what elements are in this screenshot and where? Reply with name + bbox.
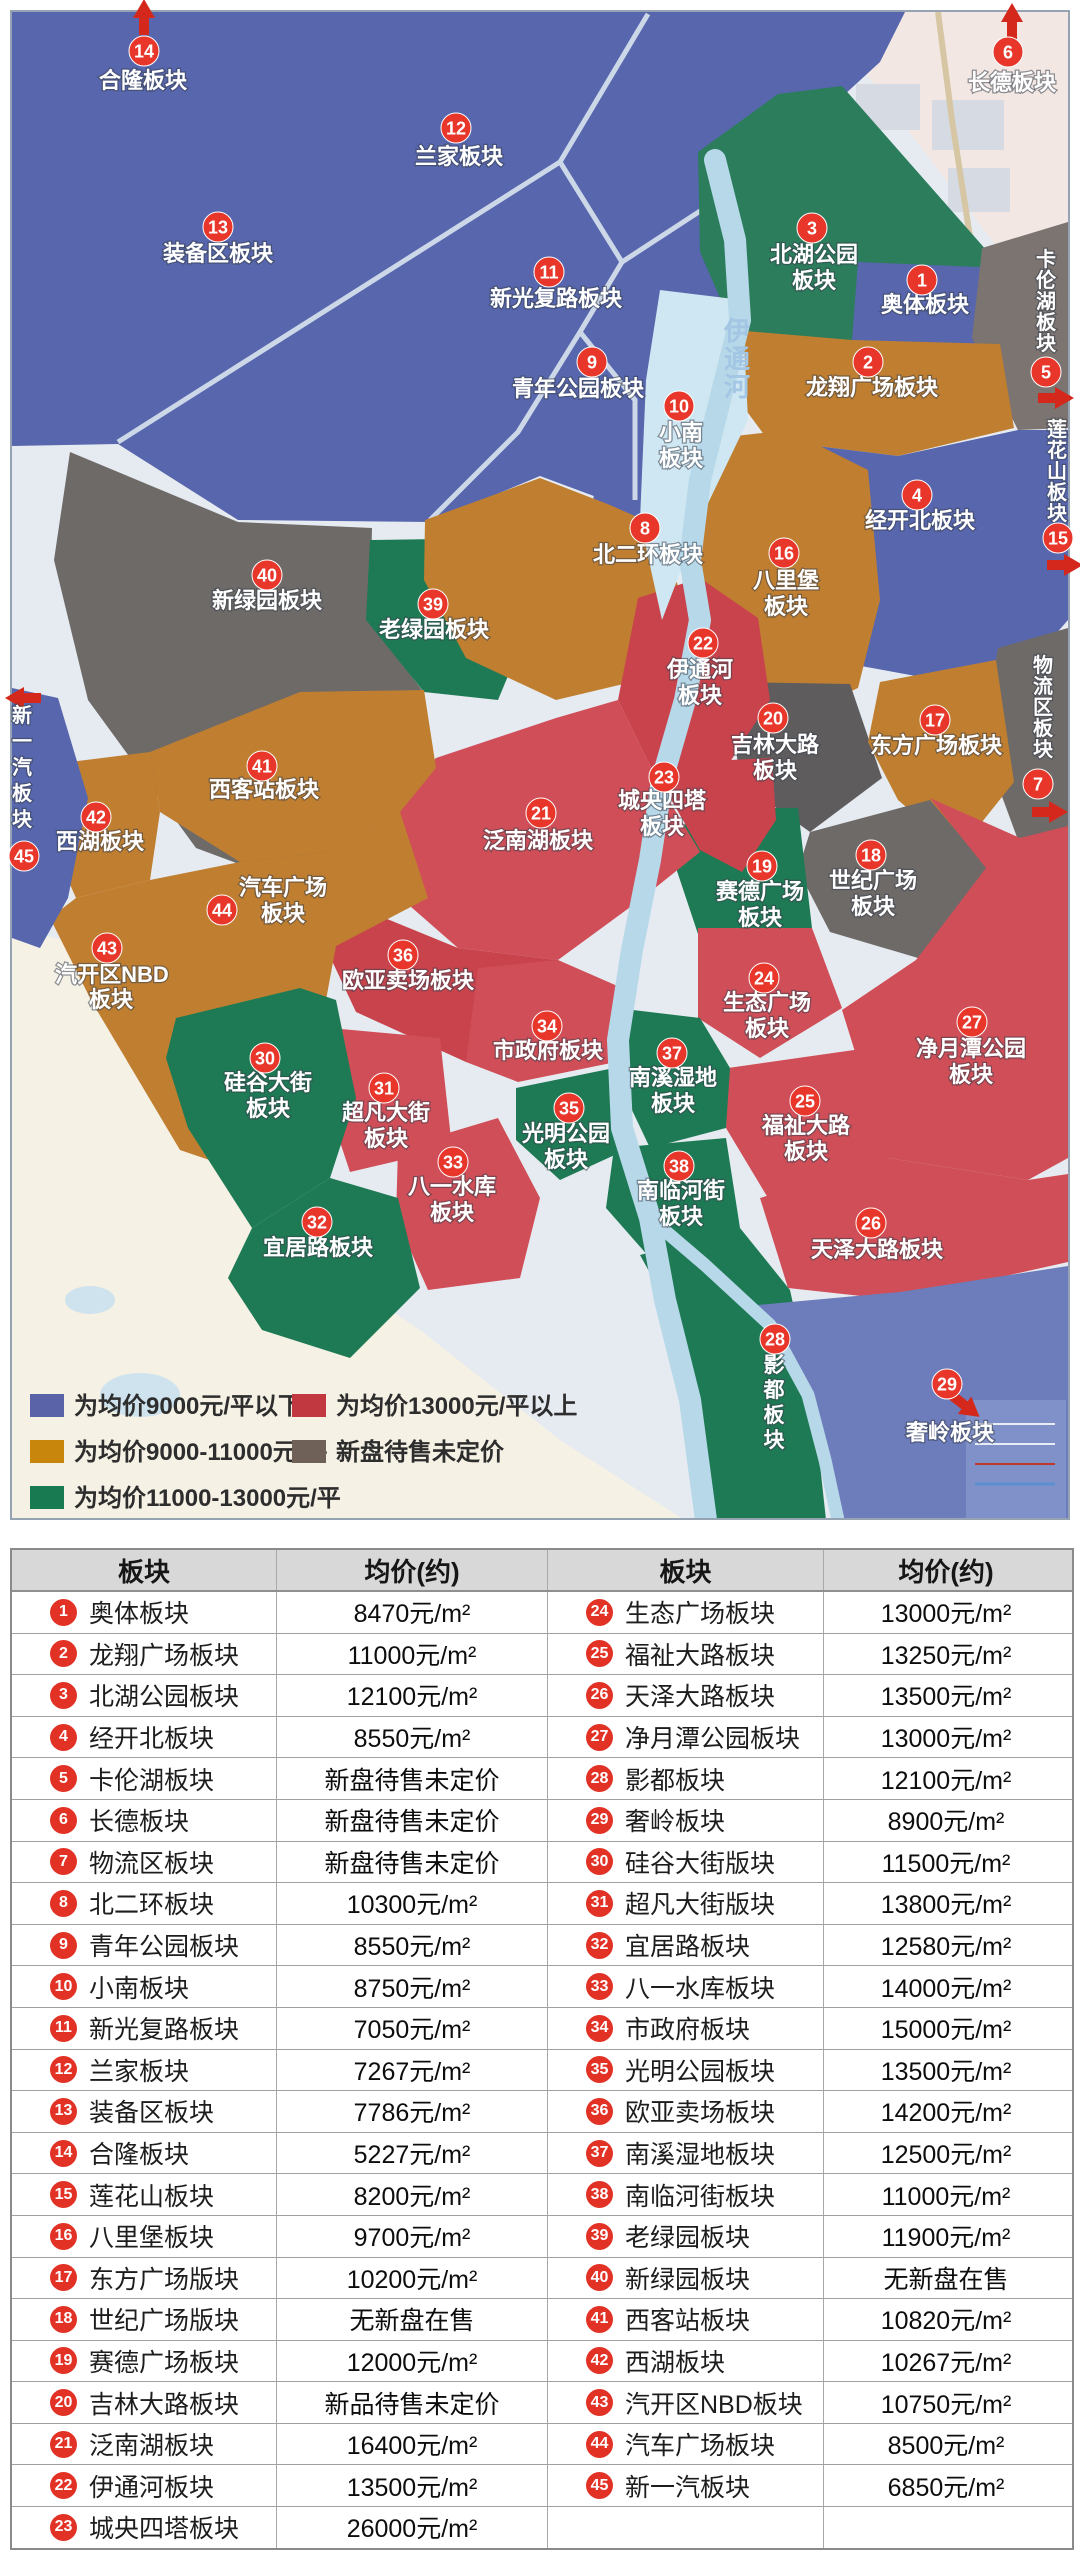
svg-text:伊通河: 伊通河	[666, 657, 733, 682]
block-price-cell: 11900元/m²	[823, 2216, 1068, 2257]
table-row: 11新光复路板块7050元/m²34市政府板块15000元/m²	[12, 2008, 1072, 2050]
block-number-badge: 38	[586, 2181, 613, 2208]
block-price-cell: 13000元/m²	[823, 1717, 1068, 1758]
svg-text:板块: 板块	[738, 905, 783, 930]
svg-text:天泽大路板块: 天泽大路板块	[811, 1237, 944, 1262]
block-number-badge: 24	[586, 1599, 613, 1626]
table-row: 6长德板块新盘待售未定价29奢岭板块8900元/m²	[12, 1800, 1072, 1842]
block-number-badge: 39	[586, 2223, 613, 2250]
block-price-cell: 26000元/m²	[276, 2507, 547, 2548]
block-name-cell: 18世纪广场版块	[12, 2299, 276, 2340]
block-name-cell: 38南临河街板块	[547, 2174, 823, 2215]
svg-text:6: 6	[1003, 43, 1013, 63]
svg-text:板: 板	[1036, 310, 1057, 334]
block-number-badge: 23	[50, 2514, 77, 2541]
svg-text:块: 块	[764, 1429, 786, 1452]
svg-text:板块: 板块	[851, 894, 896, 919]
block-name: 南临河街板块	[625, 2177, 775, 2213]
block-number-badge: 35	[586, 2056, 613, 2083]
header-block-right: 板块	[547, 1550, 823, 1590]
svg-text:小南: 小南	[659, 420, 703, 445]
block-number-badge: 32	[586, 1932, 613, 1959]
block-number-badge: 18	[50, 2306, 77, 2333]
svg-text:青年公园板块: 青年公园板块	[512, 376, 645, 401]
svg-text:为均价11000-13000元/平: 为均价11000-13000元/平	[74, 1484, 341, 1512]
block-name: 经开北板块	[89, 1719, 214, 1755]
block-number-badge: 26	[586, 1682, 613, 1709]
table-row: 12兰家板块7267元/m²35光明公园板块13500元/m²	[12, 2050, 1072, 2092]
svg-text:吉林大路: 吉林大路	[731, 732, 820, 757]
block-price-cell: 12100元/m²	[823, 1758, 1068, 1799]
block-name-cell: 7物流区板块	[12, 1842, 276, 1883]
svg-text:板: 板	[1047, 480, 1068, 504]
block-name-cell: 36欧亚卖场板块	[547, 2091, 823, 2132]
svg-text:北湖公园: 北湖公园	[770, 242, 858, 267]
block-price-cell: 新盘待售未定价	[276, 1842, 547, 1883]
table-header: 板块 均价(约) 板块 均价(约)	[12, 1550, 1072, 1592]
block-name: 超凡大街版块	[625, 1885, 775, 1921]
block-name: 泛南湖板块	[89, 2426, 214, 2462]
block-price-cell: 8750元/m²	[276, 1966, 547, 2007]
block-price-cell: 8470元/m²	[276, 1592, 547, 1633]
svg-text:45: 45	[14, 847, 34, 867]
block-name: 西湖板块	[625, 2343, 725, 2379]
svg-text:净月潭公园: 净月潭公园	[916, 1036, 1026, 1061]
block-name: 汽开区NBD板块	[625, 2385, 803, 2421]
svg-text:宜居路板块: 宜居路板块	[263, 1235, 374, 1260]
svg-text:块: 块	[1033, 738, 1054, 761]
block-name-cell: 31超凡大街版块	[547, 1883, 823, 1924]
block-name: 八里堡板块	[89, 2218, 214, 2254]
block-name-cell: 43汽开区NBD板块	[547, 2382, 823, 2423]
block-name: 奢岭板块	[625, 1802, 725, 1838]
svg-text:块: 块	[1047, 502, 1068, 525]
svg-text:板块: 板块	[678, 683, 723, 708]
svg-text:装备区板块: 装备区板块	[163, 241, 274, 266]
table-row: 10小南板块8750元/m²33八一水库板块14000元/m²	[12, 1966, 1072, 2008]
block-name-cell: 22伊通河板块	[12, 2465, 276, 2506]
block-name: 长德板块	[89, 1802, 189, 1838]
block-name-cell: 2龙翔广场板块	[12, 1634, 276, 1675]
block-number-badge: 3	[50, 1682, 77, 1709]
block-price-cell: 10267元/m²	[823, 2341, 1068, 2382]
block-name-cell: 4经开北板块	[12, 1717, 276, 1758]
svg-text:块: 块	[1036, 332, 1057, 355]
block-price-cell: 16400元/m²	[276, 2424, 547, 2465]
table-row: 23城央四塔板块26000元/m²	[12, 2507, 1072, 2548]
block-number-badge: 8	[50, 1890, 77, 1917]
svg-text:22: 22	[693, 634, 713, 654]
svg-text:新盘待售未定价: 新盘待售未定价	[336, 1438, 505, 1466]
block-name: 世纪广场版块	[89, 2301, 239, 2337]
svg-text:1: 1	[917, 271, 927, 291]
table-row: 8北二环板块10300元/m²31超凡大街版块13800元/m²	[12, 1883, 1072, 1925]
svg-text:合隆板块: 合隆板块	[99, 68, 188, 93]
block-name-cell: 42西湖板块	[547, 2341, 823, 2382]
svg-text:板: 板	[12, 781, 33, 805]
inset-map-legend-panel	[966, 1400, 1066, 1520]
svg-text:36: 36	[393, 946, 413, 966]
block-number-badge: 2	[50, 1640, 77, 1667]
svg-text:欧亚卖场板块: 欧亚卖场板块	[342, 968, 475, 993]
block-number-badge: 44	[586, 2431, 613, 2458]
svg-text:5: 5	[1041, 363, 1051, 383]
svg-text:30: 30	[255, 1049, 275, 1069]
block-name-cell: 9青年公园板块	[12, 1925, 276, 1966]
block-name-cell: 35光明公园板块	[547, 2050, 823, 2091]
table-row: 5卡伦湖板块新盘待售未定价28影都板块12100元/m²	[12, 1758, 1072, 1800]
svg-text:23: 23	[654, 768, 674, 788]
block-name-cell: 19赛德广场板块	[12, 2341, 276, 2382]
block-price-cell: 8500元/m²	[823, 2424, 1068, 2465]
city-block	[932, 100, 1004, 150]
svg-text:10: 10	[669, 397, 689, 417]
block-price-cell: 8550元/m²	[276, 1717, 547, 1758]
block-number-badge: 20	[50, 2389, 77, 2416]
svg-text:为均价13000元/平以上: 为均价13000元/平以上	[336, 1392, 577, 1420]
svg-text:奥体板块: 奥体板块	[881, 292, 970, 317]
block-price-cell: 5227元/m²	[276, 2133, 547, 2174]
block-name: 莲花山板块	[89, 2177, 214, 2213]
block-name: 伊通河板块	[89, 2468, 214, 2504]
block-number-badge: 14	[50, 2140, 77, 2167]
block-name: 吉林大路板块	[89, 2385, 239, 2421]
svg-text:兰家板块: 兰家板块	[415, 144, 504, 169]
block-number-badge: 36	[586, 2098, 613, 2125]
block-price-cell: 无新盘在售	[823, 2258, 1068, 2299]
block-price-cell: 6850元/m²	[823, 2465, 1068, 2506]
block-number-badge: 31	[586, 1890, 613, 1917]
svg-text:9: 9	[587, 353, 597, 373]
svg-text:8: 8	[640, 519, 650, 539]
svg-text:20: 20	[763, 709, 783, 729]
block-name-cell: 34市政府板块	[547, 2008, 823, 2049]
block-price-cell: 13000元/m²	[823, 1592, 1068, 1633]
block-name-cell: 5卡伦湖板块	[12, 1758, 276, 1799]
svg-text:新: 新	[12, 703, 32, 727]
block-name-cell: 21泛南湖板块	[12, 2424, 276, 2465]
block-price-cell: 12100元/m²	[276, 1675, 547, 1716]
svg-text:2: 2	[863, 353, 873, 373]
svg-text:板块: 板块	[753, 758, 798, 783]
svg-text:板块: 板块	[949, 1062, 994, 1087]
table-row: 9青年公园板块8550元/m²32宜居路板块12580元/m²	[12, 1925, 1072, 1967]
block-price-cell: 10300元/m²	[276, 1883, 547, 1924]
header-price-left: 均价(约)	[276, 1550, 547, 1590]
table-row: 3北湖公园板块12100元/m²26天泽大路板块13500元/m²	[12, 1675, 1072, 1717]
svg-text:19: 19	[752, 857, 772, 877]
block-number-badge: 11	[50, 2015, 77, 2042]
block-number-badge: 21	[50, 2431, 77, 2458]
svg-text:龙翔广场板块: 龙翔广场板块	[806, 375, 939, 400]
price-map: 伊通河奥体板块1龙翔广场板块2北湖公园板块3经开北板块4卡伦湖板块5长德板块6物…	[0, 0, 1080, 1530]
svg-text:流: 流	[1033, 674, 1053, 698]
svg-text:为均价9000-11000元/平: 为均价9000-11000元/平	[74, 1438, 327, 1466]
block-number-badge: 19	[50, 2347, 77, 2374]
block-name-cell: 23城央四塔板块	[12, 2507, 276, 2548]
block-price-cell: 14000元/m²	[823, 1966, 1068, 2007]
legend-item: 为均价11000-13000元/平	[30, 1484, 341, 1512]
svg-text:板块: 板块	[659, 446, 704, 471]
svg-text:花: 花	[1047, 439, 1067, 462]
block-number-badge: 42	[586, 2347, 613, 2374]
svg-text:莲: 莲	[1047, 417, 1067, 441]
block-name: 物流区板块	[89, 1844, 214, 1880]
block-number-badge: 12	[50, 2056, 77, 2083]
block-price-cell: 13500元/m²	[276, 2465, 547, 2506]
block-name: 市政府板块	[625, 2010, 750, 2046]
svg-text:八一水库: 八一水库	[408, 1174, 496, 1199]
table-row: 16八里堡板块9700元/m²39老绿园板块11900元/m²	[12, 2216, 1072, 2258]
svg-text:11: 11	[539, 263, 558, 283]
block-number-badge: 9	[50, 1932, 77, 1959]
block-name-cell: 45新一汽板块	[547, 2465, 823, 2506]
block-number-badge: 37	[586, 2140, 613, 2167]
block-name: 新一汽板块	[625, 2468, 750, 2504]
svg-text:山: 山	[1047, 460, 1067, 483]
block-name: 新绿园板块	[625, 2260, 750, 2296]
block-number-badge: 1	[50, 1599, 77, 1626]
block-name: 老绿园板块	[625, 2218, 750, 2254]
block-name: 影都板块	[625, 1761, 725, 1797]
svg-text:老绿园板块: 老绿园板块	[378, 617, 490, 642]
svg-text:板: 板	[764, 1404, 786, 1427]
block-price-cell: 13500元/m²	[823, 2050, 1068, 2091]
block-name: 城央四塔板块	[89, 2509, 239, 2545]
block-number-badge: 7	[50, 1848, 77, 1875]
block-price-cell: 7786元/m²	[276, 2091, 547, 2132]
river-name-label: 河	[724, 372, 750, 402]
block-number-badge: 16	[50, 2223, 77, 2250]
svg-text:汽: 汽	[12, 755, 32, 779]
block-name-cell: 10小南板块	[12, 1966, 276, 2007]
table-row: 17东方广场版块10200元/m²40新绿园板块无新盘在售	[12, 2258, 1072, 2300]
block-name-cell: 1奥体板块	[12, 1592, 276, 1633]
river-name-label: 伊	[723, 316, 750, 346]
block-name-cell: 44汽车广场板块	[547, 2424, 823, 2465]
svg-text:板块: 板块	[784, 1139, 829, 1164]
svg-text:板块: 板块	[792, 268, 837, 293]
block-name-cell: 14合隆板块	[12, 2133, 276, 2174]
svg-text:28: 28	[765, 1330, 785, 1350]
block-name: 南溪湿地板块	[625, 2135, 775, 2171]
legend-item: 新盘待售未定价	[292, 1438, 505, 1466]
block-price-cell: 9700元/m²	[276, 2216, 547, 2257]
svg-text:影: 影	[764, 1354, 785, 1377]
block-name-cell: 27净月潭公园板块	[547, 1717, 823, 1758]
svg-text:板块: 板块	[659, 1204, 704, 1229]
block-name: 生态广场板块	[625, 1594, 775, 1630]
block-number-badge: 10	[50, 1973, 77, 2000]
svg-text:超凡大街: 超凡大街	[342, 1100, 430, 1125]
block-price-cell: 8900元/m²	[823, 1800, 1068, 1841]
svg-text:物: 物	[1033, 653, 1053, 677]
svg-text:板块: 板块	[651, 1091, 696, 1116]
block-price-cell: 新盘待售未定价	[276, 1758, 547, 1799]
block-name: 光明公园板块	[625, 2052, 775, 2088]
block-number-badge: 40	[586, 2264, 613, 2291]
svg-text:卡: 卡	[1036, 248, 1056, 271]
block-name: 西客站板块	[625, 2301, 750, 2337]
svg-text:34: 34	[537, 1017, 557, 1037]
svg-text:一: 一	[12, 731, 32, 753]
block-name: 硅谷大街版块	[625, 1844, 775, 1880]
block-price-cell: 新盘待售未定价	[276, 1800, 547, 1841]
block-name-cell: 20吉林大路板块	[12, 2382, 276, 2423]
svg-text:块: 块	[12, 808, 33, 831]
table-row: 19赛德广场板块12000元/m²42西湖板块10267元/m²	[12, 2341, 1072, 2383]
svg-text:奢岭板块: 奢岭板块	[905, 1420, 995, 1445]
block-number-badge: 22	[50, 2472, 77, 2499]
block-name: 小南板块	[89, 1969, 189, 2005]
city-block	[948, 168, 1010, 212]
svg-text:泛南湖板块: 泛南湖板块	[483, 828, 594, 853]
svg-text:湖: 湖	[1036, 290, 1056, 313]
svg-text:31: 31	[374, 1079, 394, 1099]
block-number-badge: 17	[50, 2264, 77, 2291]
block-name: 宜居路板块	[625, 1927, 750, 1963]
svg-text:汽开区NBD: 汽开区NBD	[55, 962, 169, 987]
block-price-cell: 13800元/m²	[823, 1883, 1068, 1924]
svg-text:38: 38	[669, 1157, 689, 1177]
svg-text:3: 3	[807, 219, 817, 239]
svg-text:32: 32	[307, 1213, 327, 1233]
svg-text:板块: 板块	[764, 594, 809, 619]
block-name: 八一水库板块	[625, 1969, 775, 2005]
svg-text:板块: 板块	[544, 1147, 589, 1172]
block-name: 净月潭公园板块	[625, 1719, 800, 1755]
map-canvas: 伊通河奥体板块1龙翔广场板块2北湖公园板块3经开北板块4卡伦湖板块5长德板块6物…	[0, 0, 1080, 1530]
svg-text:7: 7	[1033, 775, 1043, 795]
svg-text:生态广场: 生态广场	[723, 990, 811, 1015]
block-name-cell: 25福祉大路板块	[547, 1634, 823, 1675]
block-number-badge: 43	[586, 2389, 613, 2416]
svg-text:板块: 板块	[364, 1126, 409, 1151]
block-name-cell: 3北湖公园板块	[12, 1675, 276, 1716]
svg-text:光明公园: 光明公园	[521, 1121, 610, 1146]
table-row: 20吉林大路板块新品待售未定价43汽开区NBD板块10750元/m²	[12, 2382, 1072, 2424]
svg-text:16: 16	[774, 544, 794, 564]
block-name-cell: 30硅谷大街版块	[547, 1842, 823, 1883]
block-name: 天泽大路板块	[625, 1677, 775, 1713]
table-row: 18世纪广场版块无新盘在售41西客站板块10820元/m²	[12, 2299, 1072, 2341]
block-name-cell: 16八里堡板块	[12, 2216, 276, 2257]
block-name-cell: 41西客站板块	[547, 2299, 823, 2340]
block-price-cell: 无新盘在售	[276, 2299, 547, 2340]
svg-text:板: 板	[1033, 716, 1054, 740]
block-name-cell: 37南溪湿地板块	[547, 2133, 823, 2174]
svg-text:都: 都	[763, 1378, 785, 1402]
svg-text:硅谷大街: 硅谷大街	[224, 1070, 312, 1095]
svg-text:25: 25	[795, 1092, 815, 1112]
table-row: 22伊通河板块13500元/m²45新一汽板块6850元/m²	[12, 2465, 1072, 2507]
block-name: 欧亚卖场板块	[625, 2093, 775, 2129]
block-price-cell: 10820元/m²	[823, 2299, 1068, 2340]
block-name-cell	[547, 2507, 823, 2548]
svg-text:区: 区	[1033, 697, 1053, 719]
block-price-cell: 15000元/m²	[823, 2008, 1068, 2049]
block-number-badge: 4	[50, 1724, 77, 1751]
block-name: 兰家板块	[89, 2052, 189, 2088]
table-row: 13装备区板块7786元/m²36欧亚卖场板块14200元/m²	[12, 2091, 1072, 2133]
block-number-badge: 13	[50, 2098, 77, 2125]
block-number-badge: 5	[50, 1765, 77, 1792]
block-name: 合隆板块	[89, 2135, 189, 2171]
block-name-cell: 6长德板块	[12, 1800, 276, 1841]
svg-text:北二环板块: 北二环板块	[593, 542, 704, 567]
svg-text:板块: 板块	[261, 901, 306, 926]
block-name-cell: 15莲花山板块	[12, 2174, 276, 2215]
block-price-cell: 12580元/m²	[823, 1925, 1068, 1966]
svg-text:12: 12	[446, 119, 466, 139]
svg-text:37: 37	[662, 1044, 682, 1064]
svg-text:板块: 板块	[246, 1096, 291, 1121]
table-row: 1奥体板块8470元/m²24生态广场板块13000元/m²	[12, 1592, 1072, 1634]
block-name: 福祉大路板块	[625, 1636, 775, 1672]
block-price-cell: 新品待售未定价	[276, 2382, 547, 2423]
svg-text:南溪湿地: 南溪湿地	[629, 1065, 717, 1090]
svg-text:41: 41	[252, 757, 272, 777]
block-name-cell: 39老绿园板块	[547, 2216, 823, 2257]
block-number-badge: 30	[586, 1848, 613, 1875]
block-number-badge: 33	[586, 1973, 613, 2000]
block-name: 装备区板块	[89, 2093, 214, 2129]
svg-text:35: 35	[559, 1099, 579, 1119]
block-name-cell: 40新绿园板块	[547, 2258, 823, 2299]
block-price-cell: 14200元/m²	[823, 2091, 1068, 2132]
block-name-cell: 12兰家板块	[12, 2050, 276, 2091]
svg-text:福祉大路: 福祉大路	[761, 1113, 851, 1138]
block-price-cell: 11500元/m²	[823, 1842, 1068, 1883]
svg-text:27: 27	[962, 1013, 982, 1033]
svg-text:21: 21	[531, 804, 551, 824]
table-row: 14合隆板块5227元/m²37南溪湿地板块12500元/m²	[12, 2133, 1072, 2175]
block-price-cell: 12000元/m²	[276, 2341, 547, 2382]
svg-text:伦: 伦	[1036, 268, 1057, 292]
svg-text:板块: 板块	[745, 1016, 790, 1041]
block-name-cell: 11新光复路板块	[12, 2008, 276, 2049]
svg-text:世纪广场: 世纪广场	[829, 868, 917, 893]
svg-text:为均价9000元/平以下: 为均价9000元/平以下	[74, 1392, 302, 1420]
svg-text:4: 4	[912, 486, 922, 506]
table-row: 2龙翔广场板块11000元/m²25福祉大路板块13250元/m²	[12, 1634, 1072, 1676]
block-name-cell: 26天泽大路板块	[547, 1675, 823, 1716]
svg-text:南临河街: 南临河街	[637, 1178, 725, 1203]
block-price-cell: 8550元/m²	[276, 1925, 547, 1966]
svg-text:新光复路板块: 新光复路板块	[490, 286, 623, 311]
svg-text:赛德广场: 赛德广场	[715, 879, 804, 904]
block-name-cell: 8北二环板块	[12, 1883, 276, 1924]
svg-text:24: 24	[754, 969, 774, 989]
block-name-cell: 32宜居路板块	[547, 1925, 823, 1966]
table-row: 21泛南湖板块16400元/m²44汽车广场板块8500元/m²	[12, 2424, 1072, 2466]
block-number-badge: 45	[586, 2472, 613, 2499]
svg-text:板块: 板块	[430, 1200, 475, 1225]
block-price-cell: 11000元/m²	[823, 2174, 1068, 2215]
block-name: 东方广场版块	[89, 2260, 239, 2296]
svg-text:板块: 板块	[89, 987, 134, 1012]
block-price-cell: 11000元/m²	[276, 1634, 547, 1675]
block-name: 北湖公园板块	[89, 1677, 239, 1713]
svg-text:新绿园板块: 新绿园板块	[212, 588, 323, 613]
svg-text:13: 13	[208, 218, 228, 238]
block-price-cell: 10750元/m²	[823, 2382, 1068, 2423]
svg-text:39: 39	[423, 595, 443, 615]
pond	[65, 1286, 115, 1314]
svg-text:29: 29	[937, 1375, 957, 1395]
block-number-badge: 15	[50, 2181, 77, 2208]
table-body: 1奥体板块8470元/m²24生态广场板块13000元/m²2龙翔广场板块110…	[12, 1592, 1072, 2548]
